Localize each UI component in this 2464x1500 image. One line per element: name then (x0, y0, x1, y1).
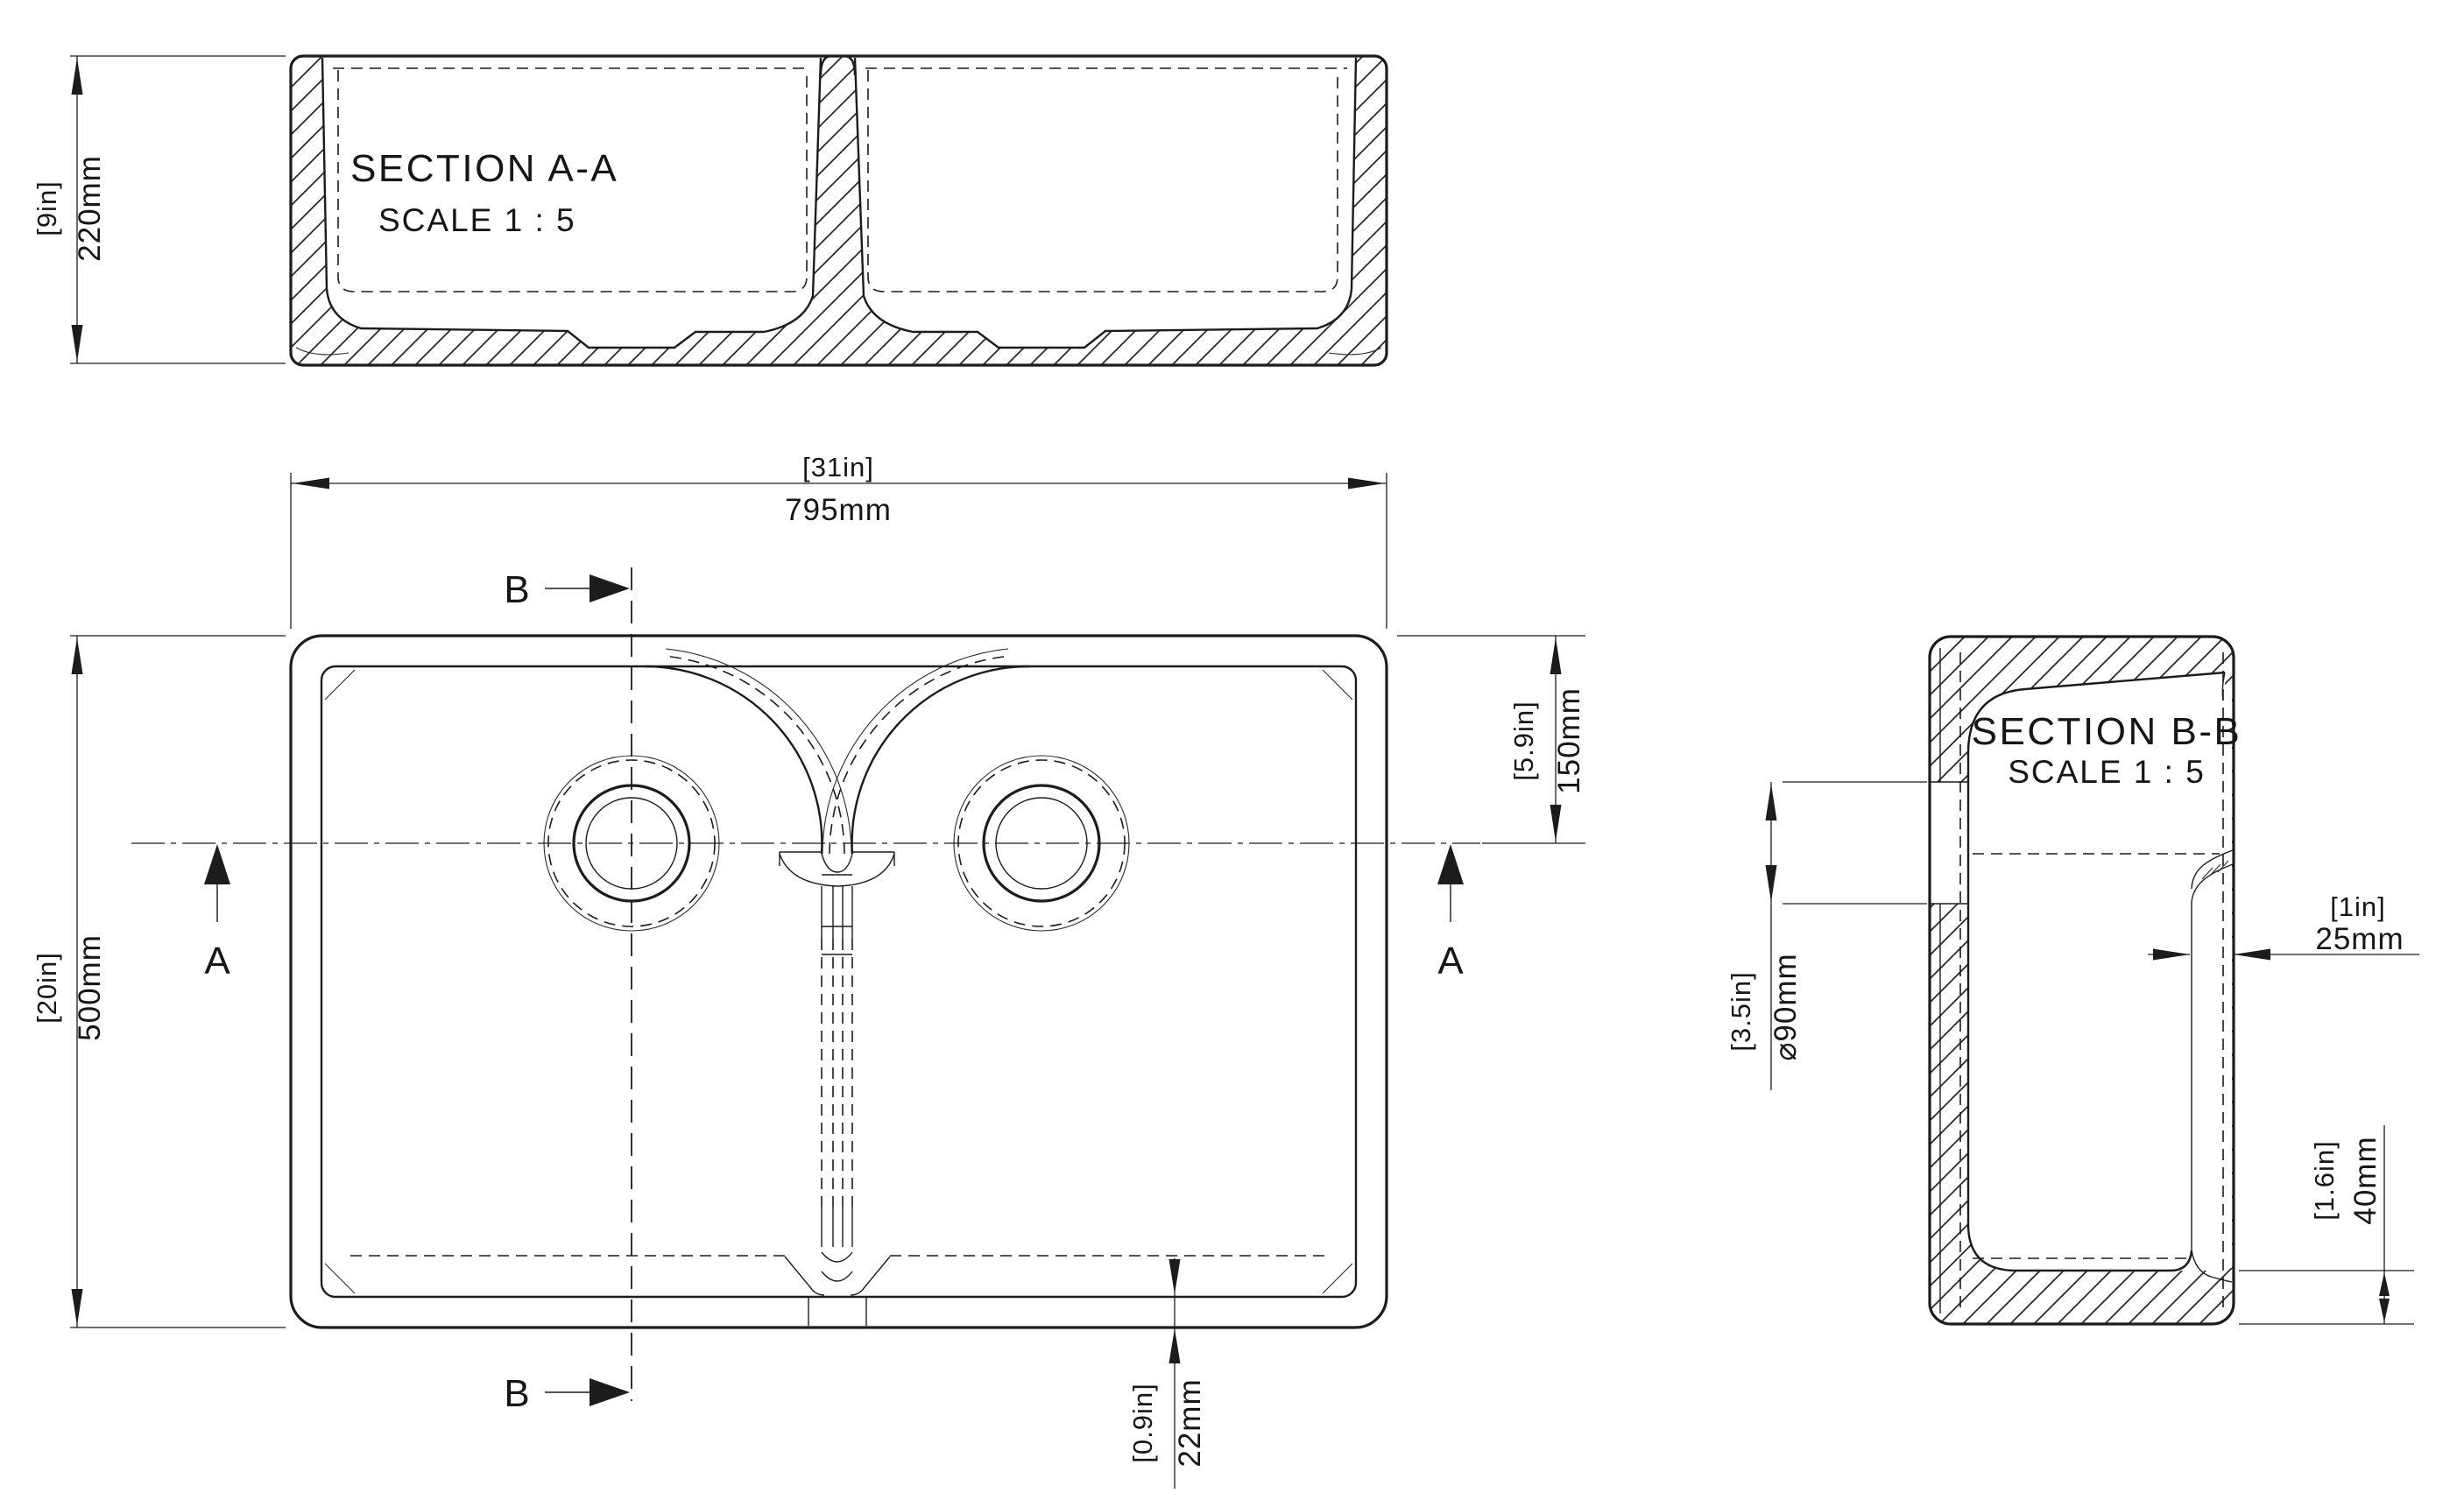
marker-b-bottom-label: B (504, 1372, 529, 1415)
width-metric-label: 795mm (785, 493, 892, 527)
aa-scale-note: SCALE 1 : 5 (378, 202, 576, 238)
wall-metric-label: 25mm (2315, 922, 2404, 956)
base-imperial-label: [1.6in] (2309, 1140, 2340, 1220)
technical-drawing: SECTION A-A SCALE 1 : 5 [9in] 220mm (0, 0, 2464, 1500)
width-imperial-label: [31in] (802, 452, 874, 482)
section-bb-view: SECTION B-B SCALE 1 : 5 (1930, 637, 2242, 1324)
depth-imperial-label: [20in] (32, 952, 62, 1024)
marker-b-top-label: B (504, 568, 529, 611)
drain-metric-label: ⌀90mm (1769, 953, 1803, 1060)
rim-imperial-label: [0.9in] (1127, 1383, 1158, 1462)
marker-a-right-label: A (1437, 940, 1464, 982)
height-metric-label: 220mm (73, 155, 107, 262)
base-metric-label: 40mm (2348, 1136, 2383, 1224)
drain-imperial-label: [3.5in] (1726, 971, 1756, 1051)
wall-imperial-label: [1in] (2330, 891, 2386, 922)
rim-metric-label: 22mm (1173, 1378, 1207, 1467)
depth-metric-label: 500mm (73, 934, 107, 1041)
aa-title: SECTION A-A (350, 147, 618, 190)
offset-metric-label: 150mm (1552, 687, 1586, 794)
offset-imperial-label: [5.9in] (1508, 701, 1539, 780)
bb-scale-note: SCALE 1 : 5 (2008, 754, 2206, 790)
section-aa-view: SECTION A-A SCALE 1 : 5 (291, 55, 1387, 365)
marker-a-left-label: A (204, 940, 230, 982)
height-imperial-label: [9in] (32, 180, 62, 236)
bb-title: SECTION B-B (1972, 710, 2242, 753)
